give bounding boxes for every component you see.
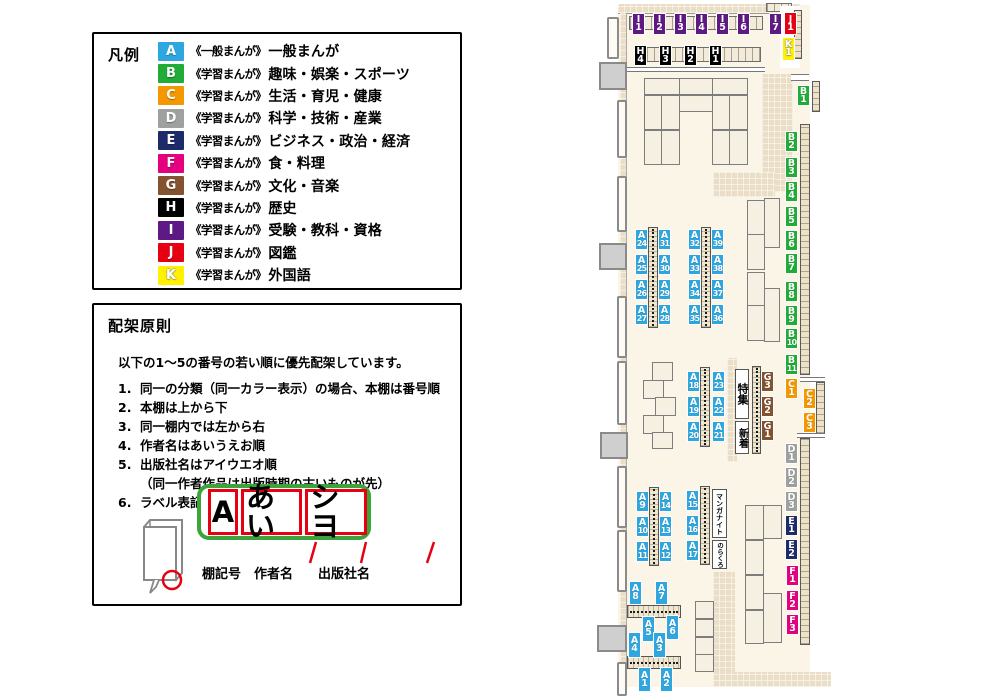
shelf-label-A30: A30 [658,254,671,275]
shelf-label-G3: G3 [761,371,774,392]
shelf-label-B4: B4 [785,181,798,202]
shelf-cell [661,95,680,130]
shelf-label-E2: E2 [785,539,798,560]
shelf-label-F2: F2 [786,590,799,611]
shelf-label-A2: A2 [660,667,673,692]
shelf-label-A21: A21 [712,421,725,442]
wall-jog [791,74,809,81]
shelf-label-I2: I2 [653,13,666,35]
shelf-cell [745,610,764,644]
shelf-label-A22: A22 [712,396,725,417]
shelf-label-B6: B6 [785,230,798,251]
shelf-label-B11: B11 [785,354,798,375]
shelf-cell [764,288,780,342]
shelf-label-A34: A34 [688,279,701,300]
shelf-cell [644,78,680,95]
table-cell [655,397,676,416]
wall-segment [617,662,627,696]
shelf-label-A10: A10 [636,516,649,537]
shelf-cell [747,305,765,341]
shelf-cell [712,130,730,165]
shelf-label-A25: A25 [635,254,648,275]
shelf-label-A14: A14 [659,491,672,512]
shelf-label-A3: A3 [653,632,666,658]
shelf-label-A39: A39 [711,229,724,250]
new-arrivals-shelf: 新着 [735,421,749,454]
shelf-label-I4: I4 [695,13,708,35]
shelf-label-D3: D3 [785,491,798,512]
shelf-label-F3: F3 [786,614,799,635]
shelf-label-A27: A27 [635,304,648,325]
shelf-label-A7: A7 [655,581,668,605]
shelf-label-A28: A28 [658,304,671,325]
shelf-label-A23: A23 [712,371,725,392]
shelf-label-B3: B3 [785,157,798,178]
shelf-cell [729,130,748,165]
shelf-strip [700,486,710,565]
shelf-label-A4: A4 [628,632,641,658]
shelf-label-A11: A11 [636,541,649,562]
shelf-label-A24: A24 [635,229,648,250]
shelf-strip [700,367,710,447]
shelf-cell [644,95,662,130]
wall-segment [617,466,627,528]
shelf-label-D1: D1 [785,443,798,464]
shelf-label-B9: B9 [785,305,798,326]
shelf-cell [747,200,765,235]
table-cell [695,654,714,672]
table-cell [652,362,673,381]
shelf-label-D2: D2 [785,467,798,488]
door-block [599,62,627,90]
shelf-label-I7: I7 [769,13,782,35]
shelf-label-A19: A19 [687,396,700,417]
shelf-label-A6: A6 [666,615,679,640]
wall-segment [617,296,627,358]
shelf-label-K1: K1 [782,37,795,61]
shelf-label-C3: C3 [803,412,816,433]
shelf-label-A18: A18 [687,371,700,392]
shelf-label-E1: E1 [785,515,798,536]
shelf-label-I1: I1 [632,13,645,35]
wall-segment [617,530,627,592]
shelf-label-C2: C2 [803,388,816,409]
shelf-label-A35: A35 [688,304,701,325]
shelf-label-A9: A9 [636,491,649,512]
shelf-label-A32: A32 [688,229,701,250]
shelf-label-J1: J1 [784,12,797,35]
wall-right-lower [800,438,810,645]
door-block [600,432,628,459]
shelf-cell [712,78,748,95]
shelf-label-A13: A13 [659,516,672,537]
walkway-bottom [713,672,831,687]
shelf-label-A36: A36 [711,304,724,325]
shelf-label-H4: H4 [634,45,647,66]
special-feature-shelf: 特集 [735,369,749,419]
shelf-label-A20: A20 [687,421,700,442]
shelf-label-A8: A8 [629,581,642,605]
shelf-label-H2: H2 [684,45,697,66]
shelf-strip [752,366,761,454]
table-cell [695,637,714,655]
shelf-label-F1: F1 [786,565,799,586]
shelf-label-B8: B8 [785,281,798,302]
shelf-label-A16: A16 [686,515,699,536]
shelf-label-C1: C1 [785,378,798,399]
wall-alcove [816,382,825,434]
shelf-cell [745,575,764,610]
walkway-bottom-arm [713,572,735,674]
shelf-cell [747,234,765,270]
floor-map: 特集 新着 マンガナイト のらくろ I1I2I3I4I5I6I7J1K1H4H3… [0,0,1000,700]
shelf-label-B10: B10 [785,328,798,349]
shelf-strip [701,227,711,328]
shelf-label-I6: I6 [737,13,750,35]
shelf-label-B1: B1 [797,85,810,106]
walkway-arm [713,172,775,197]
wall-segment [617,176,627,232]
shelf-label-A17: A17 [686,540,699,561]
door-block [597,625,627,652]
shelf-label-A31: A31 [658,229,671,250]
shelf-label-A12: A12 [659,541,672,562]
wall-segment [617,361,627,425]
shelf-cell [712,95,730,130]
shelf-cell [764,198,780,248]
shelf-label-A38: A38 [711,254,724,275]
shelf-label-I5: I5 [716,13,729,35]
door-block [599,243,627,270]
shelf-cell [763,505,782,539]
shelf-cell [679,95,713,112]
shelf-cell [745,540,764,575]
shelf-label-H3: H3 [659,45,672,66]
wall-segment [617,100,627,158]
shelf-cell [679,78,713,95]
shelf-strip [648,227,658,328]
shelf-label-A1: A1 [638,667,651,692]
shelf-label-B5: B5 [785,206,798,227]
wall-pillar [607,17,619,59]
shelf-label-A29: A29 [658,279,671,300]
shelf-label-A33: A33 [688,254,701,275]
shelf-label-B7: B7 [785,253,798,274]
manga-night-shelf: マンガナイト [712,489,727,538]
shelf-label-H1: H1 [709,45,722,66]
shelf-strip [649,487,659,566]
floor-map-page: 凡例 A《一般まんが》一般まんがB《学習まんが》趣味・娯楽・スポーツC《学習まん… [0,0,1000,700]
shelf-cell [644,130,662,165]
shelf-label-I3: I3 [674,13,687,35]
table-cell [652,432,673,449]
shelf-label-G2: G2 [761,396,774,417]
wall-divider [627,67,765,72]
table-cell [695,601,714,619]
shelf-label-A37: A37 [711,279,724,300]
wall-right-upper [800,124,810,375]
shelf-cell [661,130,680,165]
shelf-label-B2: B2 [785,131,798,152]
norakuro-shelf: のらくろ [712,540,727,569]
table-cell [695,619,714,637]
shelf-edge-b1 [812,81,820,112]
shelf-cell [745,505,764,540]
shelf-cell [729,95,748,130]
shelf-label-G1: G1 [761,420,774,441]
shelf-cell [747,272,765,306]
shelf-label-A15: A15 [686,490,699,511]
shelf-cell [763,593,782,643]
shelf-label-A26: A26 [635,279,648,300]
